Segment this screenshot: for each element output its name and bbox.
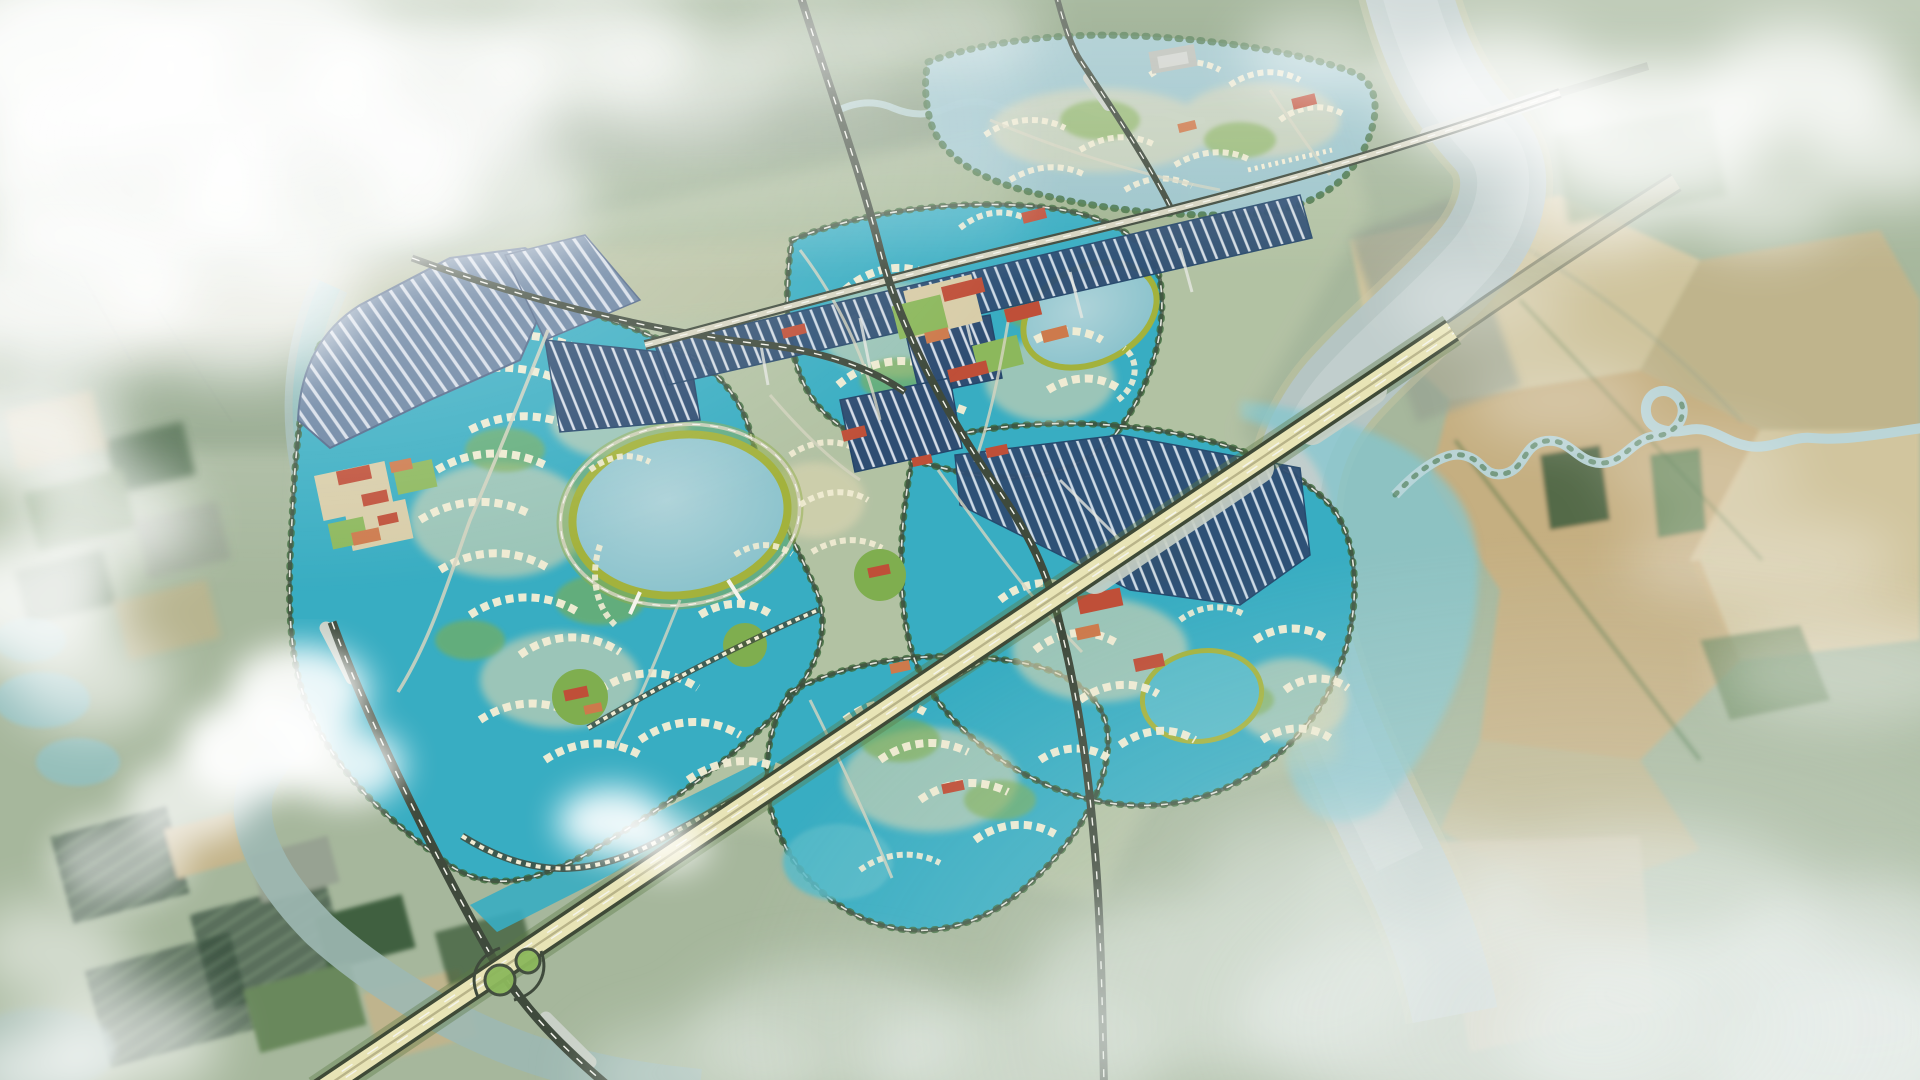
- cloud-cover: [0, 0, 1920, 1080]
- haze-veil-bottomright: [0, 0, 1920, 1080]
- aerial-eco-city-rendering: [0, 0, 1920, 1080]
- aerial-render-canvas: [0, 0, 1920, 1080]
